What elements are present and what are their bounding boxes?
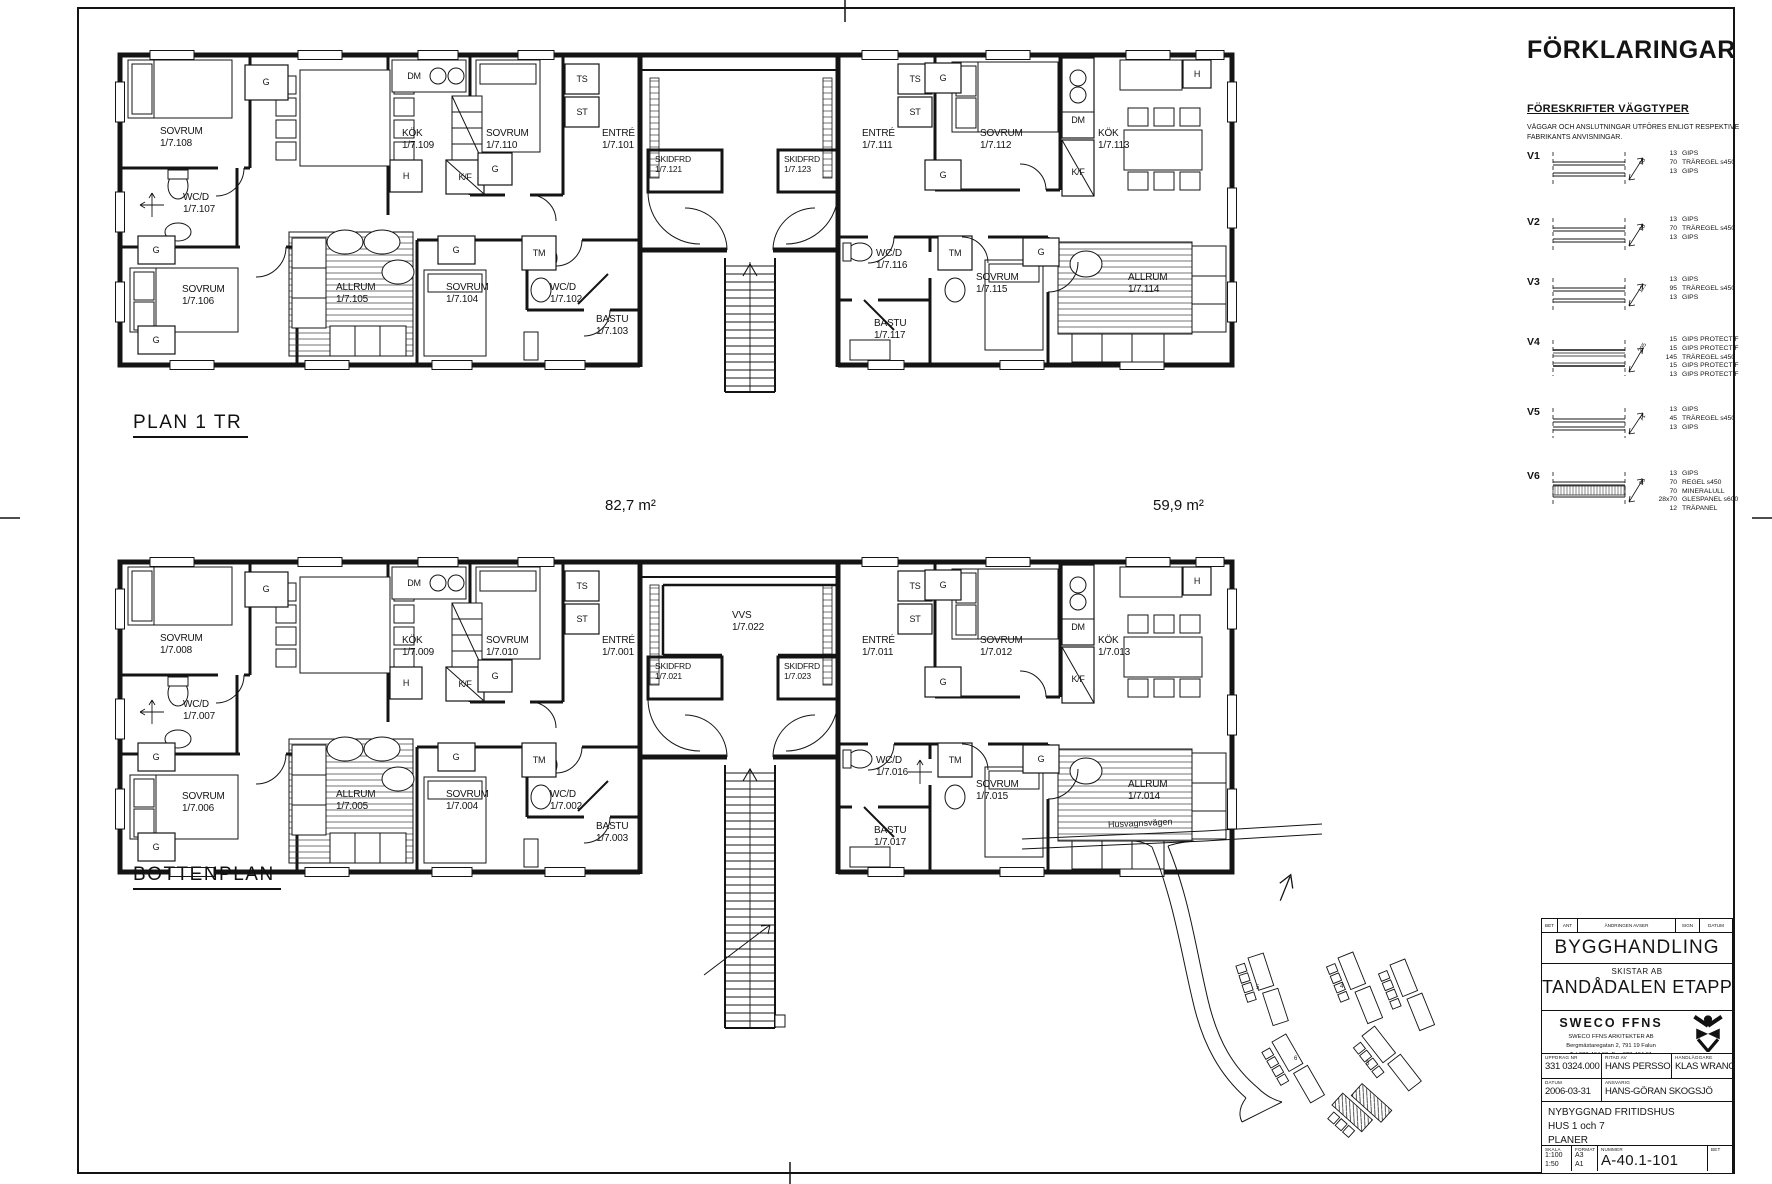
room-label: SOVRUM1/7.110	[486, 128, 529, 151]
site-lot-label: 6	[1294, 1056, 1297, 1062]
room-label: BASTU1/7.103	[596, 314, 628, 337]
fixture-label-dm: DM	[1071, 622, 1084, 632]
room-label: ENTRÉ1/7.011	[862, 635, 895, 658]
revision-header-row: BET ANT ÄNDRINGEN AVSER SIGN DATUM	[1542, 919, 1732, 933]
meta-row-1: UPPDRAG NR331 0324.000 RITAD AVHANS PERS…	[1542, 1054, 1732, 1079]
meta-row-2: DATUM2006-03-31 ANSVARIGHANS-GÖRAN SKOGS…	[1542, 1079, 1732, 1102]
walltype-dim: 96	[1636, 220, 1649, 237]
bet-cell: BET	[1708, 1146, 1732, 1171]
fixture-label-g: G	[1038, 247, 1045, 257]
fixture-label-ts: TS	[577, 74, 588, 84]
company-street: Bergmästaregatan 2, 791 19 Falun	[1542, 1042, 1680, 1051]
room-label: WC/D1/7.102	[550, 282, 582, 305]
legend-note: VÄGGAR OCH ANSLUTNINGAR UTFÖRES ENLIGT R…	[1527, 123, 1739, 143]
fixture-label-g: G	[940, 73, 947, 83]
walltype-code: V6	[1527, 470, 1551, 482]
walltype-dim: 121	[1636, 280, 1649, 297]
site-lot-label: 3	[1366, 1061, 1369, 1067]
stairs-upper	[725, 258, 775, 392]
walltype-v5: V5 71 13GIPS 45TRÄREGEL s450 13GIPS	[1527, 406, 1735, 432]
fixture-label-ts: TS	[910, 581, 921, 591]
fixture-label-g: G	[940, 677, 947, 687]
fixture-label-g: G	[153, 245, 160, 255]
area-label-right: 59,9 m²	[1153, 497, 1204, 514]
legend-note-line2: FABRIKANTS ANVISNINGAR.	[1527, 133, 1739, 143]
ansvarig-cell: ANSVARIGHANS-GÖRAN SKOGSJÖ	[1602, 1079, 1732, 1101]
room-label: SKIDFRD1/7.023	[784, 662, 820, 682]
room-label: ENTRÉ1/7.101	[602, 128, 635, 151]
room-label: ALLRUM1/7.014	[1128, 779, 1167, 802]
site-lot-label: 4	[1340, 984, 1343, 990]
fixture-label-g: G	[453, 245, 460, 255]
uppdrag-cell: UPPDRAG NR331 0324.000	[1542, 1054, 1602, 1078]
room-label: SOVRUM1/7.112	[980, 128, 1023, 151]
walltype-v3: V3 121 13GIPS 95TRÄREGEL s450 13GIPS	[1527, 276, 1735, 302]
fixture-label-h: H	[403, 171, 409, 181]
walltype-code: V3	[1527, 276, 1551, 288]
room-label: ALLRUM1/7.114	[1128, 272, 1167, 295]
legend-note-line1: VÄGGAR OCH ANSLUTNINGAR UTFÖRES ENLIGT R…	[1527, 123, 1739, 133]
fixture-label-ts: TS	[577, 581, 588, 591]
fixture-label-dm: DM	[1071, 115, 1084, 125]
fixture-label-g: G	[492, 671, 499, 681]
company-address: SWECO FFNS ARKITEKTER AB Bergmästaregata…	[1542, 1033, 1680, 1054]
stairs-lower	[704, 765, 785, 1028]
description-line1: NYBYGGNAD FRITIDSHUS	[1548, 1106, 1732, 1120]
company-row: SWECO FFNS SWECO FFNS ARKITEKTER AB Berg…	[1542, 1011, 1732, 1054]
room-label: WC/D1/7.002	[550, 789, 582, 812]
walltype-diagrams	[1553, 152, 1643, 506]
legend-title: FÖRKLARINGAR	[1527, 36, 1736, 65]
room-label: WC/D1/7.107	[183, 192, 215, 215]
fixture-label-st: ST	[910, 614, 921, 624]
fixture-label-tm: TM	[533, 755, 545, 765]
room-label: SKIDFRD1/7.121	[655, 155, 691, 175]
rev-col-ant: ANT	[1558, 919, 1578, 932]
company-sub: SWECO FFNS ARKITEKTER AB	[1542, 1033, 1680, 1042]
fixture-label-st: ST	[577, 107, 588, 117]
walltype-v1: V1 96 13GIPS 70TRÄREGEL s450 13GIPS	[1527, 150, 1735, 176]
walltype-v4: V4 205 15GIPS PROTECT F 15GIPS PROTECT F…	[1527, 336, 1739, 380]
doc-type: BYGGHANDLING	[1542, 933, 1732, 962]
room-label: ALLRUM1/7.005	[336, 789, 375, 812]
room-label: SOVRUM1/7.012	[980, 635, 1023, 658]
room-label: SOVRUM1/7.106	[182, 284, 225, 307]
title-block: BET ANT ÄNDRINGEN AVSER SIGN DATUM BYGGH…	[1541, 918, 1733, 1174]
project-name: TANDÅDALEN ETAPP I	[1542, 977, 1732, 998]
room-label: SOVRUM1/7.104	[446, 282, 489, 305]
room-label: VVS1/7.022	[732, 610, 764, 633]
fixture-label-h: H	[403, 678, 409, 688]
fixture-label-tm: TM	[533, 248, 545, 258]
room-label: KÖK1/7.013	[1098, 635, 1130, 658]
fixture-label-st: ST	[910, 107, 921, 117]
description-line3: PLANER	[1548, 1134, 1732, 1146]
walltype-code: V2	[1527, 216, 1551, 228]
room-label: KÖK1/7.009	[402, 635, 434, 658]
north-arrow-icon	[1274, 872, 1297, 903]
fixture-label-tm: TM	[949, 755, 961, 765]
room-label: SOVRUM1/7.006	[182, 791, 225, 814]
client-name: SKISTAR AB	[1542, 967, 1732, 976]
walltype-code: V1	[1527, 150, 1551, 162]
walltype-v2: V2 96 13GIPS 70TRÄREGEL s450 13GIPS	[1527, 216, 1735, 242]
fixture-label-kf: K/F	[458, 172, 471, 182]
walltype-dim: 96	[1636, 154, 1649, 171]
fixture-label-dm: DM	[407, 578, 420, 588]
room-label: SOVRUM1/7.010	[486, 635, 529, 658]
fixture-label-g: G	[153, 842, 160, 852]
site-lot-label: 5	[1256, 985, 1259, 991]
fixture-label-g: G	[492, 164, 499, 174]
fixture-label-ts: TS	[910, 74, 921, 84]
doc-type-row: BYGGHANDLING	[1542, 933, 1732, 964]
fixture-label-st: ST	[577, 614, 588, 624]
walltype-dim: 95	[1636, 474, 1649, 491]
fixture-label-g: G	[453, 752, 460, 762]
bottenplan-title: BOTTENPLAN	[133, 864, 281, 890]
room-label: WC/D1/7.016	[876, 755, 908, 778]
fixture-label-g: G	[263, 584, 270, 594]
fixture-label-g: G	[1038, 754, 1045, 764]
room-label: ALLRUM1/7.105	[336, 282, 375, 305]
ritad-cell: RITAD AVHANS PERSSON	[1602, 1054, 1672, 1078]
plan1-title: PLAN 1 TR	[133, 412, 248, 438]
fixture-label-g: G	[940, 170, 947, 180]
nummer-cell: NUMMERA-40.1-101	[1598, 1146, 1708, 1171]
project-row: SKISTAR AB TANDÅDALEN ETAPP I	[1542, 964, 1732, 1011]
site-subject-buildings	[1323, 1078, 1391, 1147]
walltype-v6: V6 95 13GIPS 70REGEL s450 70MINERALULL 2…	[1527, 470, 1738, 514]
room-label: ENTRÉ1/7.111	[862, 128, 895, 151]
fixture-label-h: H	[1194, 576, 1200, 586]
fixture-label-tm: TM	[949, 248, 961, 258]
room-label: SOVRUM1/7.115	[976, 272, 1019, 295]
room-label: SKIDFRD1/7.123	[784, 155, 820, 175]
area-label-left: 82,7 m²	[605, 497, 656, 514]
rev-col-avser: ÄNDRINGEN AVSER	[1578, 919, 1676, 932]
sweco-logo	[1689, 1014, 1727, 1052]
rev-col-sign: SIGN	[1676, 919, 1700, 932]
fixture-label-g: G	[153, 335, 160, 345]
handlaggare-cell: HANDLÄGGAREKLAS WRANGE	[1672, 1054, 1732, 1078]
legend-subtitle: FÖRESKRIFTER VÄGGTYPER	[1527, 103, 1689, 115]
fixture-label-g: G	[153, 752, 160, 762]
skala-cell: SKALA 1:1001:50	[1542, 1146, 1572, 1171]
number-row: SKALA 1:1001:50 FORMAT A3A1 NUMMERA-40.1…	[1542, 1146, 1732, 1171]
room-label: SOVRUM1/7.015	[976, 779, 1019, 802]
walltype-code: V4	[1527, 336, 1551, 348]
walltype-dim: 71	[1636, 410, 1649, 427]
room-label: KÖK1/7.109	[402, 128, 434, 151]
room-label: SKIDFRD1/7.021	[655, 662, 691, 682]
rev-col-bet: BET	[1542, 919, 1558, 932]
room-label: WC/D1/7.007	[183, 699, 215, 722]
drawing-sheet: PLAN 1 TR BOTTENPLAN 82,7 m² 59,9 m² SOV…	[0, 0, 1772, 1184]
walltype-dim: 205	[1636, 340, 1649, 357]
datum-cell: DATUM2006-03-31	[1542, 1079, 1602, 1101]
room-label: BASTU1/7.117	[874, 318, 906, 341]
fixture-label-kf: K/F	[1071, 674, 1084, 684]
room-label: SOVRUM1/7.008	[160, 633, 203, 656]
fixture-label-dm: DM	[407, 71, 420, 81]
company-name: SWECO FFNS	[1542, 1016, 1680, 1030]
rev-col-datum: DATUM	[1700, 919, 1732, 932]
room-label: BASTU1/7.003	[596, 821, 628, 844]
room-label: WC/D1/7.116	[876, 248, 907, 271]
fixture-label-g: G	[940, 580, 947, 590]
room-label: BASTU1/7.017	[874, 825, 906, 848]
room-label: SOVRUM1/7.004	[446, 789, 489, 812]
fixture-label-kf: K/F	[1071, 167, 1084, 177]
fixture-label-kf: K/F	[458, 679, 471, 689]
fixture-label-h: H	[1194, 69, 1200, 79]
room-label: SOVRUM1/7.108	[160, 126, 203, 149]
room-label: KÖK1/7.113	[1098, 128, 1129, 151]
room-label: ENTRÉ1/7.001	[602, 635, 635, 658]
format-cell: FORMAT A3A1	[1572, 1146, 1598, 1171]
description-line2: HUS 1 och 7	[1548, 1120, 1732, 1134]
fixture-label-g: G	[263, 77, 270, 87]
walltype-code: V5	[1527, 406, 1551, 418]
description-row: NYBYGGNAD FRITIDSHUS HUS 1 och 7 PLANER	[1542, 1102, 1732, 1146]
